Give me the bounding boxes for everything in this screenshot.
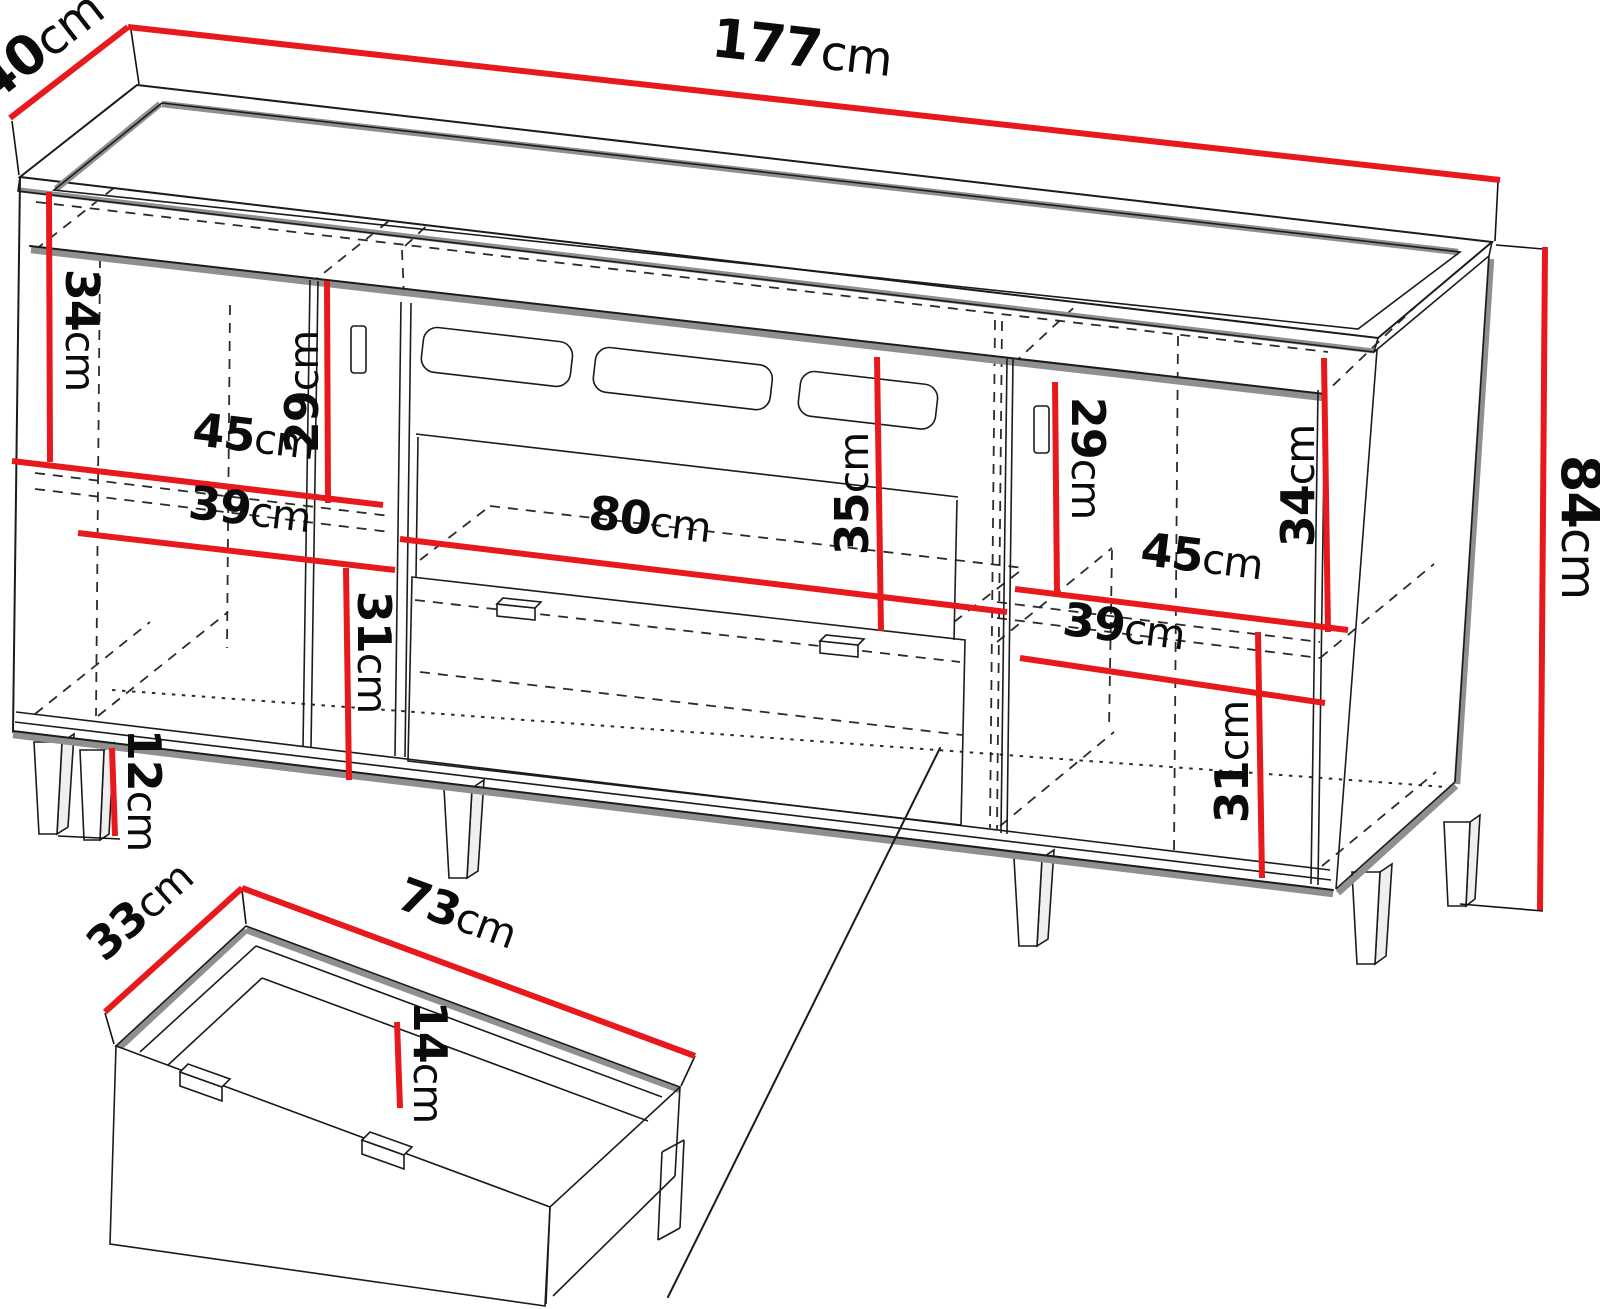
dim-label-drawer-inner-height: 14cm: [403, 1001, 457, 1124]
dim-label-height: 84cm: [1549, 455, 1600, 599]
dim-label-left-top-clearance: 34cm: [55, 269, 109, 392]
dim-label-right-width-upper: 45cm: [1138, 522, 1266, 591]
dim-line-leg-height: [112, 748, 115, 836]
dim-label-niche-height: 35cm: [825, 433, 879, 556]
dim-label-leg-height: 12cm: [117, 729, 171, 852]
dim-line-right-lower-shelf: [1258, 632, 1262, 878]
cabinet-top-panel: [18, 85, 1492, 352]
drawer-detail: [110, 926, 684, 1306]
dim-label-depth: 40cm: [0, 0, 115, 115]
dim-label-left-width-lower: 39cm: [186, 475, 314, 543]
dim-label-left-lower-shelf: 31cm: [347, 591, 401, 714]
dim-label-right-upper-shelf: 29cm: [1061, 397, 1115, 520]
dim-line-right-width-lower: [1020, 658, 1325, 703]
diagram-page: 177cm 40cm 84cm 34cm 29cm 45cm 39cm 31cm…: [0, 0, 1600, 1309]
dim-line-right-upper-shelf: [1055, 382, 1057, 592]
dim-label-width: 177cm: [709, 6, 896, 89]
left-door-handle: [351, 326, 366, 373]
dim-label-right-lower-shelf: 31cm: [1205, 701, 1259, 824]
dim-label-drawer-depth: 33cm: [76, 849, 203, 971]
right-door-handle: [1034, 406, 1049, 453]
drawer-front-panel: [110, 1046, 550, 1306]
furniture-dimension-diagram: 177cm 40cm 84cm 34cm 29cm 45cm 39cm 31cm…: [0, 0, 1600, 1309]
dim-line-left-width-lower: [78, 533, 395, 570]
dim-label-right-top-clearance: 34cm: [1271, 425, 1325, 548]
dim-label-niche-width: 80cm: [586, 485, 714, 553]
dim-label-right-width-lower: 39cm: [1060, 592, 1188, 661]
dim-line-height: [1540, 247, 1545, 910]
dim-line-drawer-inner-height: [397, 1022, 400, 1108]
dim-label-drawer-width: 73cm: [391, 867, 525, 960]
dim-line-left-top-clearance: [49, 192, 50, 462]
